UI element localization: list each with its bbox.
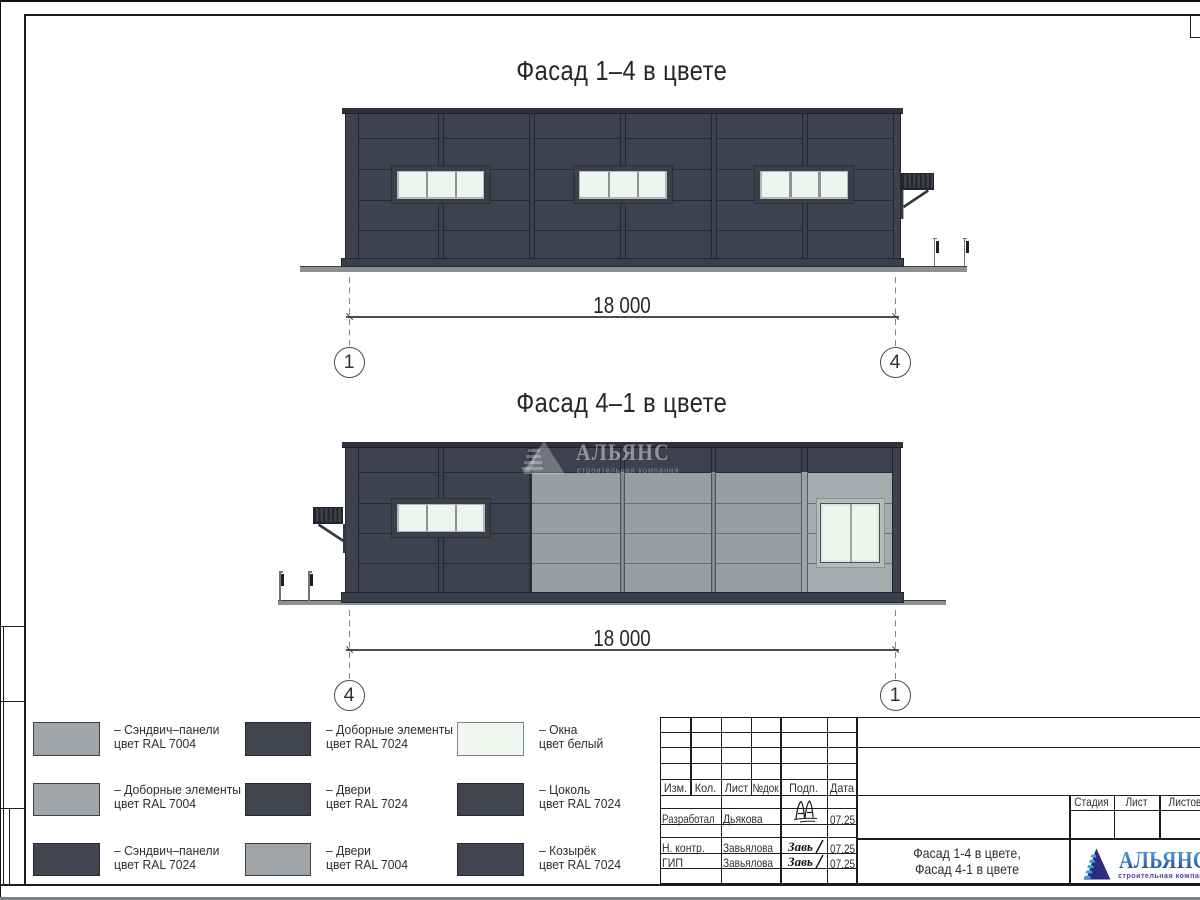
svg-text:Завь: Завь xyxy=(787,839,813,854)
svg-text:Завь: Завь xyxy=(787,854,813,869)
